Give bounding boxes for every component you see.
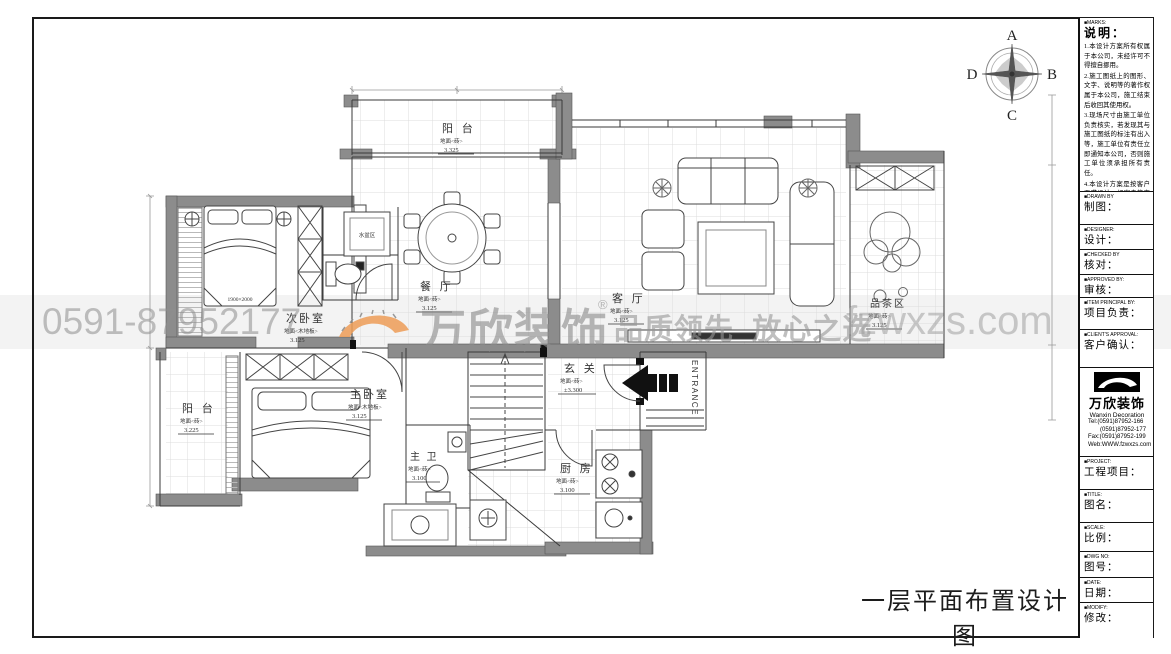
field-drawn-by: ■DRAWN BY 制图： xyxy=(1080,192,1153,225)
room-name: 厨 房 xyxy=(560,462,594,475)
field-label-en: ■APPROVED BY: xyxy=(1084,277,1150,283)
field-label-cn: 审核： xyxy=(1084,284,1150,297)
field-label-en: ■CHECKED BY xyxy=(1084,252,1150,258)
room-finish: 地面<砖> xyxy=(440,137,463,145)
company-logo-icon xyxy=(1094,372,1140,392)
room-level: 3.125 xyxy=(614,317,629,324)
field-label-cn: 制图： xyxy=(1084,201,1150,214)
sheet-caption: 一层平面布置设计图 xyxy=(852,581,1078,654)
company-web: Web:WWW.fzwxzs.com xyxy=(1084,442,1150,450)
field-label-cn: 修改： xyxy=(1084,612,1150,625)
company-tel1: Tel:(0591)87952-166 xyxy=(1084,419,1150,427)
field-item-principal: ■ITEM PRINCIPAL BY: 项目负责： xyxy=(1080,298,1153,330)
field-label-cn: 客户确认： xyxy=(1084,339,1150,352)
room-name: 品茶区 xyxy=(870,297,906,310)
field-label-cn: 日期： xyxy=(1084,587,1150,600)
compass-d: D xyxy=(967,67,978,83)
title-block: ■MARKS: 说明： 1.本设计方案所有权属于本公司，未经许可不得擅自挪用。 … xyxy=(1078,18,1153,638)
stove xyxy=(596,450,642,498)
field-title: ■TITLE: 图名： xyxy=(1080,490,1153,523)
company-tel2: (0591)87952-177 xyxy=(1084,427,1150,435)
bed-secondary xyxy=(204,206,276,306)
compass-b: B xyxy=(1047,67,1057,83)
entrance-label: ENTRANCE xyxy=(690,360,699,416)
field-label-en: ■SCALE: xyxy=(1084,525,1150,531)
bed-size-label: 1900×2000 xyxy=(227,297,252,303)
room-finish: 地面<砖> xyxy=(180,417,203,425)
basin-master xyxy=(448,432,466,452)
room-level: 3.125 xyxy=(872,322,887,329)
basin-area-label: 水盆区 xyxy=(359,231,376,239)
notes-block: 1.本设计方案所有权属于本公司，未经许可不得擅自挪用。 2.施工图纸上的图形、文… xyxy=(1084,42,1150,192)
room-finish: 地面<木地板> xyxy=(284,327,318,335)
bed-master xyxy=(252,388,370,478)
field-checked-by: ■CHECKED BY 核对： xyxy=(1080,250,1153,275)
room-name: 阳 台 xyxy=(182,401,216,415)
room-finish: 地面<砖> xyxy=(408,465,431,473)
field-label-cn: 核对： xyxy=(1084,259,1150,272)
field-label-en: ■DESIGNER: xyxy=(1084,227,1150,233)
note-3: 3.现场尺寸由施工单位负责核实，若发现其与施工图纸的标注有出入等，施工单位有责任… xyxy=(1084,111,1150,178)
room-finish: 地面<砖> xyxy=(556,477,579,485)
room-level: 3.225 xyxy=(184,427,199,434)
field-label-en: ■DATE: xyxy=(1084,580,1150,586)
kitchen-sink xyxy=(596,502,642,538)
room-finish: 地面<木地板> xyxy=(348,403,382,411)
titleblock-marks: ■MARKS: 说明： 1.本设计方案所有权属于本公司，未经许可不得擅自挪用。 … xyxy=(1080,18,1153,192)
field-label-cn: 图号： xyxy=(1084,561,1150,574)
wardrobe-master xyxy=(246,354,348,380)
room-name: 阳 台 xyxy=(442,121,476,135)
field-designer: ■DESIGNER: 设计： xyxy=(1080,225,1153,250)
room-level: 3.325 xyxy=(444,147,459,154)
field-label-en: ■TITLE: xyxy=(1084,492,1150,498)
staircase xyxy=(470,354,543,470)
room-name: 客 厅 xyxy=(612,291,646,305)
room-name: 主卧室 xyxy=(350,387,389,401)
field-label-en: ■DRAWN BY xyxy=(1084,194,1150,200)
field-label-en: ■ITEM PRINCIPAL BY: xyxy=(1084,300,1150,306)
room-name: 主 卫 xyxy=(410,451,439,463)
toilet-secondary xyxy=(326,262,361,286)
company-brand-en: Wanxin Decoration xyxy=(1084,412,1150,419)
company-fax: Fax:(0591)87952-199 xyxy=(1084,434,1150,442)
field-dwg-no: ■DWG NO: 图号： xyxy=(1080,552,1153,578)
room-level: ±3.300 xyxy=(564,387,582,394)
field-label-cn: 项目负责： xyxy=(1084,307,1150,320)
room-level: 3.125 xyxy=(290,337,305,344)
field-label-cn: 比例： xyxy=(1084,532,1150,545)
washing-machine xyxy=(384,504,456,546)
room-finish: 地面<砖> xyxy=(610,307,633,315)
wardrobe-secondary xyxy=(298,206,322,306)
company-block: 万欣装饰 Wanxin Decoration Tel:(0591)87952-1… xyxy=(1080,368,1153,457)
field-date: ■DATE: 日期： xyxy=(1080,578,1153,603)
field-client-approval: ■CLIENT'S APPROVAL: 客户确认： xyxy=(1080,330,1153,368)
compass-c: C xyxy=(1007,108,1017,124)
note-4: 4.本设计方案是按客户要求设计，经客户签字即视为同意认可，不得随意更改。 xyxy=(1084,180,1150,192)
room-name: 餐 厅 xyxy=(420,279,454,293)
field-approved-by: ■APPROVED BY: 审核： xyxy=(1080,275,1153,298)
room-level: 3.100 xyxy=(412,475,427,482)
floor-plan: 阳 台 地面<砖> 3.325 餐 厅 地面<砖> 3.125 客 厅 地面<砖… xyxy=(0,0,1171,654)
field-scale: ■SCALE: 比例： xyxy=(1080,523,1153,552)
utility-basin xyxy=(470,500,506,540)
field-label-en: ■DWG NO: xyxy=(1084,554,1150,560)
field-label-cn: 图名： xyxy=(1084,499,1150,512)
field-label-cn: 工程项目： xyxy=(1084,466,1150,479)
room-finish: 地面<砖> xyxy=(418,295,441,303)
room-name: 玄 关 xyxy=(564,361,598,375)
compass-rose-icon: A B C D xyxy=(967,28,1057,124)
compass-a: A xyxy=(1007,28,1018,44)
field-modify: ■MODIFY: 修改： xyxy=(1080,603,1153,638)
marks-label-cn: 说明： xyxy=(1084,27,1150,40)
room-level: 3.100 xyxy=(560,487,575,494)
note-2: 2.施工图纸上的图形、文字、说明等的著作权属于本公司，施工结束后收回其使用权。 xyxy=(1084,72,1150,110)
tv-console xyxy=(628,330,820,342)
field-label-cn: 设计： xyxy=(1084,234,1150,247)
room-level: 3.125 xyxy=(352,413,367,420)
room-level: 3.125 xyxy=(422,305,437,312)
field-label-en: ■CLIENT'S APPROVAL: xyxy=(1084,332,1150,338)
drawing-sheet: 阳 台 地面<砖> 3.325 餐 厅 地面<砖> 3.125 客 厅 地面<砖… xyxy=(0,0,1171,654)
room-name: 次卧室 xyxy=(286,311,325,325)
field-project: ■PROJECT: 工程项目： xyxy=(1080,457,1153,490)
note-1: 1.本设计方案所有权属于本公司，未经许可不得擅自挪用。 xyxy=(1084,42,1150,71)
room-finish: 地面<砖> xyxy=(560,377,583,385)
company-brand: 万欣装饰 xyxy=(1084,393,1150,412)
field-label-en: ■MODIFY: xyxy=(1084,605,1150,611)
field-label-en: ■PROJECT: xyxy=(1084,459,1150,465)
room-finish: 地面<砖> xyxy=(868,312,891,320)
